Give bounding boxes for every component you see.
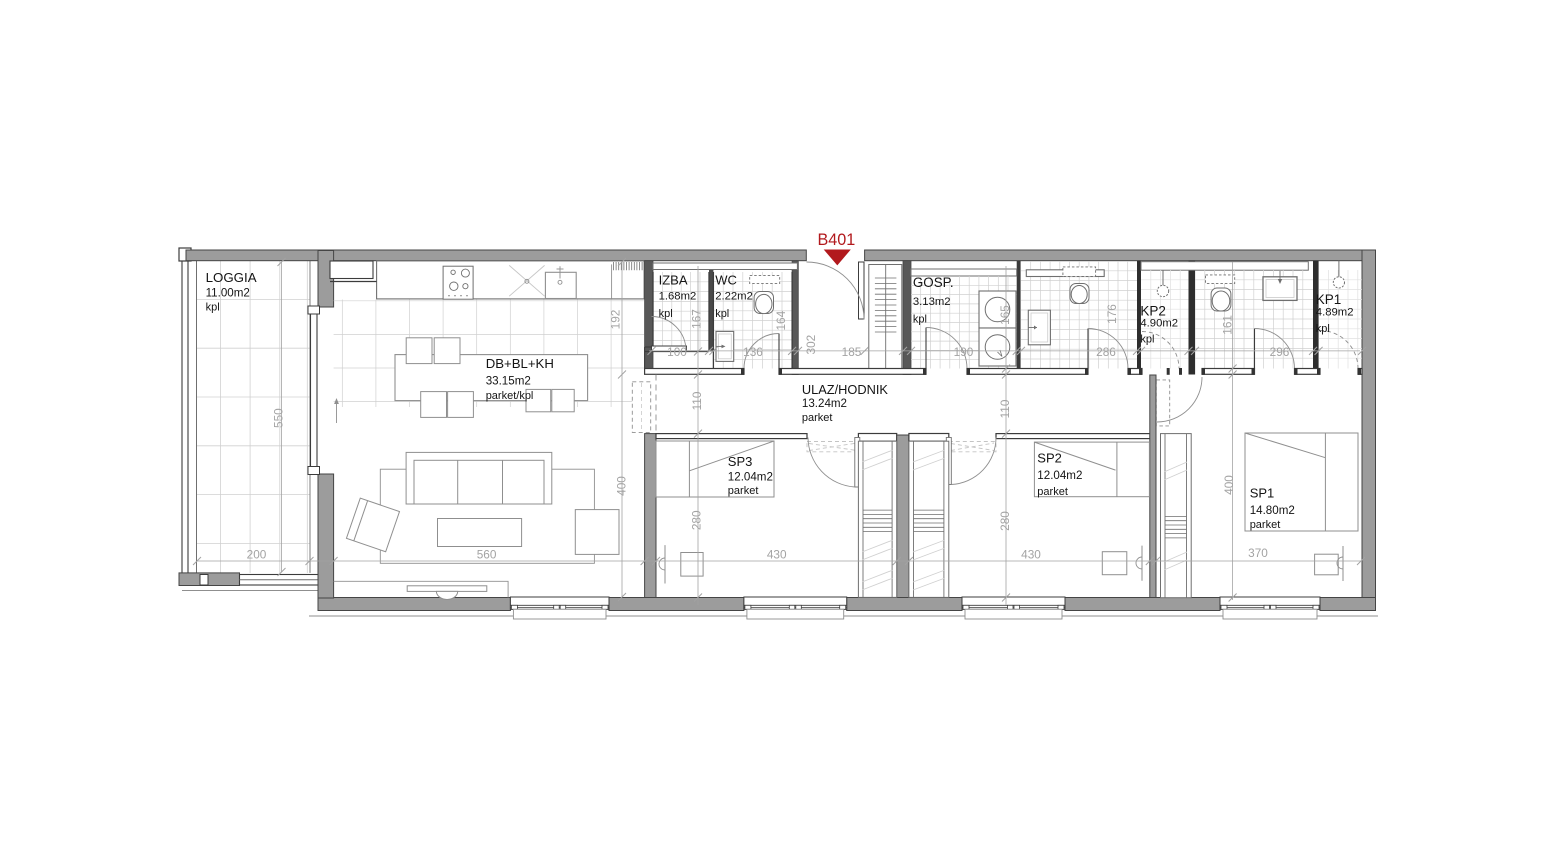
svg-text:kpl: kpl [1316, 323, 1330, 335]
svg-text:4.89m2: 4.89m2 [1316, 307, 1354, 319]
svg-text:kpl: kpl [659, 308, 673, 320]
svg-text:parket: parket [802, 412, 833, 424]
svg-text:ULAZ/HODNIK: ULAZ/HODNIK [802, 382, 888, 397]
svg-text:33.15m2: 33.15m2 [486, 375, 531, 388]
svg-text:280: 280 [690, 510, 704, 530]
svg-text:DB+BL+KH: DB+BL+KH [486, 356, 554, 371]
svg-text:296: 296 [1270, 345, 1290, 359]
svg-text:200: 200 [247, 548, 267, 562]
svg-text:110: 110 [998, 399, 1012, 418]
svg-text:KP1: KP1 [1316, 292, 1342, 307]
svg-text:370: 370 [1248, 546, 1268, 560]
svg-text:100: 100 [667, 345, 687, 359]
svg-text:parket/kpl: parket/kpl [486, 390, 534, 402]
svg-text:110: 110 [690, 391, 704, 410]
svg-text:161: 161 [1221, 315, 1235, 335]
svg-text:430: 430 [767, 548, 787, 562]
svg-text:192: 192 [609, 310, 623, 330]
svg-text:430: 430 [1021, 548, 1041, 562]
svg-text:LOGGIA: LOGGIA [206, 270, 257, 285]
svg-text:2.22m2: 2.22m2 [715, 291, 753, 303]
svg-text:12.04m2: 12.04m2 [1037, 469, 1082, 482]
svg-text:1.68m2: 1.68m2 [659, 291, 697, 303]
svg-text:kpl: kpl [206, 302, 220, 314]
svg-text:11.00m2: 11.00m2 [206, 287, 250, 300]
svg-text:185: 185 [842, 345, 862, 359]
svg-text:286: 286 [1096, 345, 1116, 359]
svg-text:550: 550 [272, 408, 286, 428]
svg-text:400: 400 [615, 476, 629, 496]
svg-text:400: 400 [1222, 475, 1236, 495]
svg-text:GOSP.: GOSP. [913, 275, 954, 290]
svg-text:164: 164 [774, 310, 788, 330]
svg-text:12.04m2: 12.04m2 [728, 471, 773, 484]
svg-text:kpl: kpl [1140, 334, 1154, 346]
svg-text:parket: parket [1250, 519, 1281, 531]
svg-text:parket: parket [728, 485, 759, 497]
svg-text:167: 167 [690, 309, 704, 329]
svg-text:parket: parket [1037, 486, 1068, 498]
svg-text:3.13m2: 3.13m2 [913, 296, 951, 308]
svg-text:280: 280 [998, 511, 1012, 531]
svg-text:136: 136 [743, 345, 763, 359]
svg-text:302: 302 [804, 335, 818, 355]
svg-text:165: 165 [998, 305, 1012, 325]
svg-text:kpl: kpl [715, 308, 729, 320]
svg-text:4.90m2: 4.90m2 [1140, 318, 1178, 330]
svg-text:SP2: SP2 [1037, 451, 1062, 466]
svg-text:SP1: SP1 [1250, 486, 1275, 501]
svg-text:13.24m2: 13.24m2 [802, 397, 847, 410]
svg-text:KP2: KP2 [1140, 304, 1166, 319]
svg-text:SP3: SP3 [728, 454, 753, 469]
svg-text:WC: WC [715, 273, 737, 288]
svg-text:14.80m2: 14.80m2 [1250, 504, 1295, 517]
svg-text:B401: B401 [818, 231, 856, 249]
svg-text:kpl: kpl [913, 314, 927, 326]
svg-text:IZBA: IZBA [659, 273, 688, 288]
svg-text:190: 190 [954, 345, 974, 359]
svg-text:560: 560 [477, 548, 497, 562]
svg-text:176: 176 [1105, 304, 1119, 324]
